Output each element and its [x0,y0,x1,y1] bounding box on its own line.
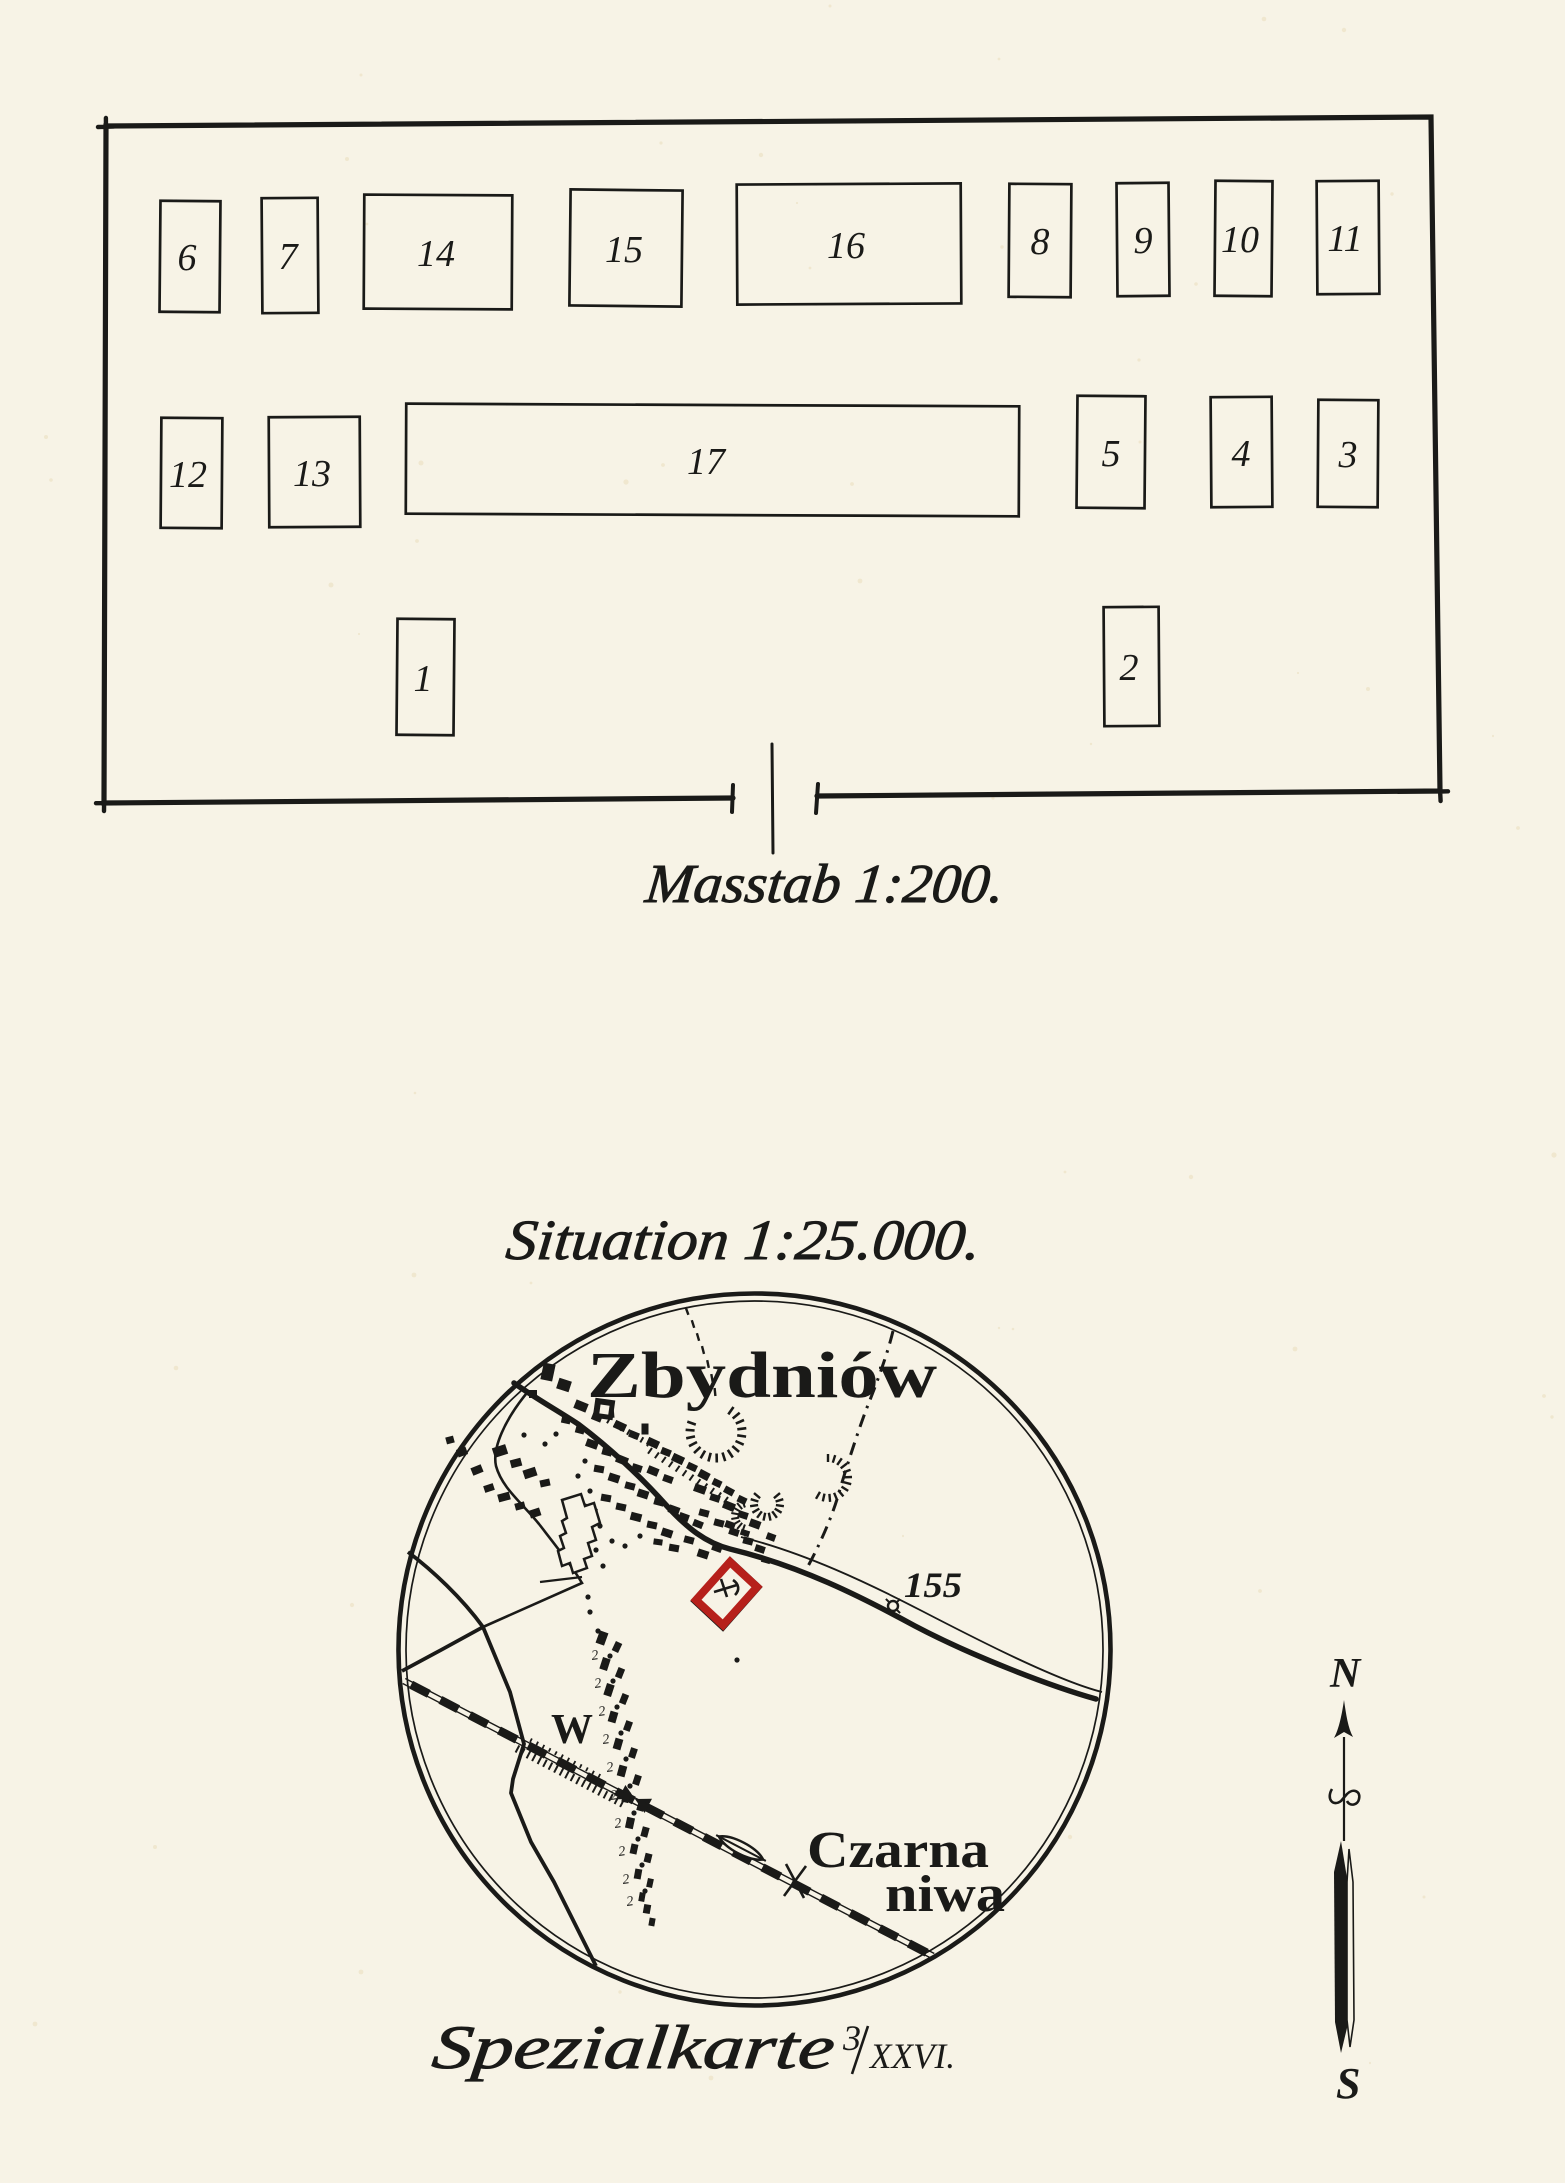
svg-text:13: 13 [293,453,331,495]
svg-text:W: W [551,1707,593,1753]
svg-text:1: 1 [414,658,433,700]
svg-text:Zbydniów: Zbydniów [587,1339,937,1412]
svg-text:10: 10 [1221,219,1259,261]
svg-text:9: 9 [1134,220,1153,262]
svg-text:6: 6 [178,237,197,279]
svg-text:16: 16 [827,225,865,267]
svg-text:5: 5 [1102,433,1121,475]
svg-text:7: 7 [279,236,300,278]
svg-text:8: 8 [1031,221,1050,263]
svg-text:niwa: niwa [885,1866,1005,1923]
svg-text:N: N [1329,1651,1362,1697]
svg-text:3: 3 [1338,434,1358,476]
svg-text:4: 4 [1232,433,1251,475]
svg-text:XXVI.: XXVI. [868,2036,955,2076]
svg-text:2: 2 [1120,647,1139,689]
svg-text:S: S [1336,2059,1360,2108]
svg-text:14: 14 [417,233,455,275]
svg-text:Masstab 1:200.: Masstab 1:200. [642,853,1007,914]
svg-text:Spezialkarte: Spezialkarte [429,2014,838,2082]
svg-text:155: 155 [904,1565,962,1605]
svg-text:11: 11 [1327,218,1362,260]
svg-text:17: 17 [687,441,727,483]
svg-text:15: 15 [605,229,643,271]
svg-text:Situation 1:25.000.: Situation 1:25.000. [503,1209,984,1272]
svg-text:12: 12 [169,454,207,496]
